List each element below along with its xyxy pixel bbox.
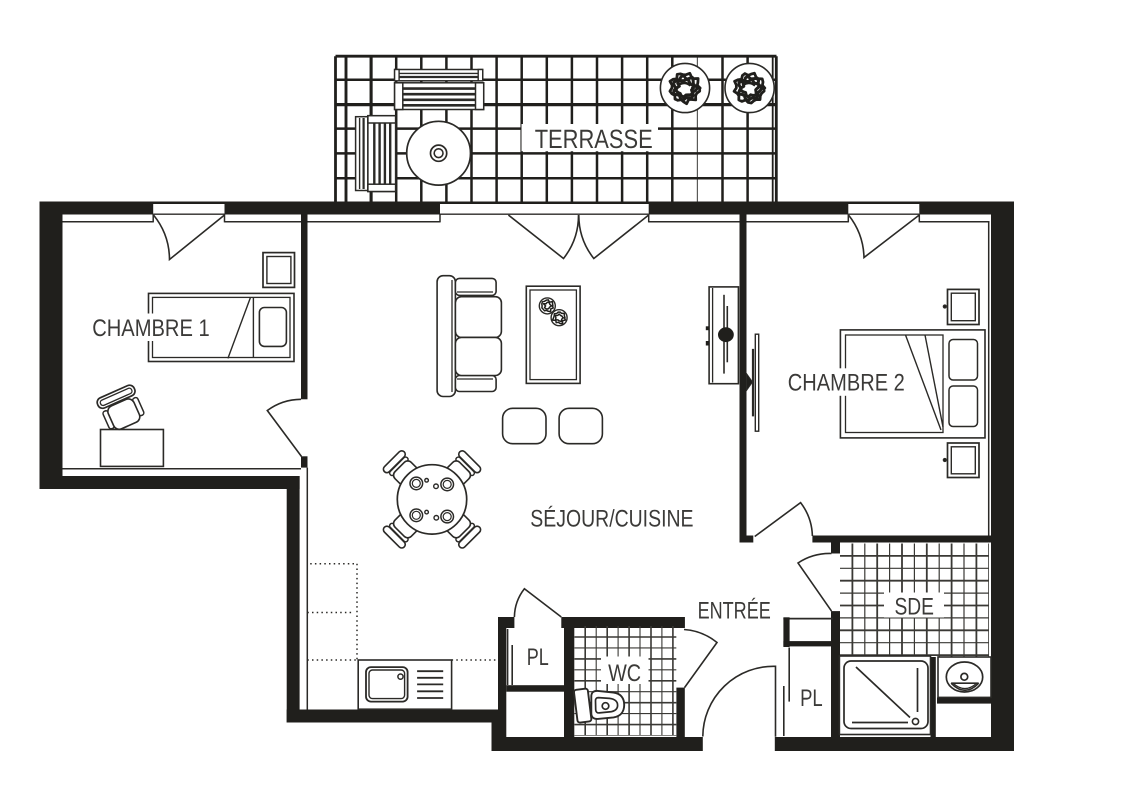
svg-text:TERRASSE: TERRASSE [535, 124, 653, 154]
svg-text:ENTRÉE: ENTRÉE [698, 597, 771, 624]
svg-text:CHAMBRE 2: CHAMBRE 2 [788, 370, 905, 397]
svg-text:PL: PL [800, 685, 823, 712]
svg-text:SDE: SDE [895, 594, 935, 621]
svg-text:CHAMBRE 1: CHAMBRE 1 [92, 315, 210, 342]
svg-text:WC: WC [608, 660, 641, 687]
svg-text:PL: PL [527, 644, 549, 671]
svg-text:SÉJOUR/CUISINE: SÉJOUR/CUISINE [530, 505, 693, 532]
